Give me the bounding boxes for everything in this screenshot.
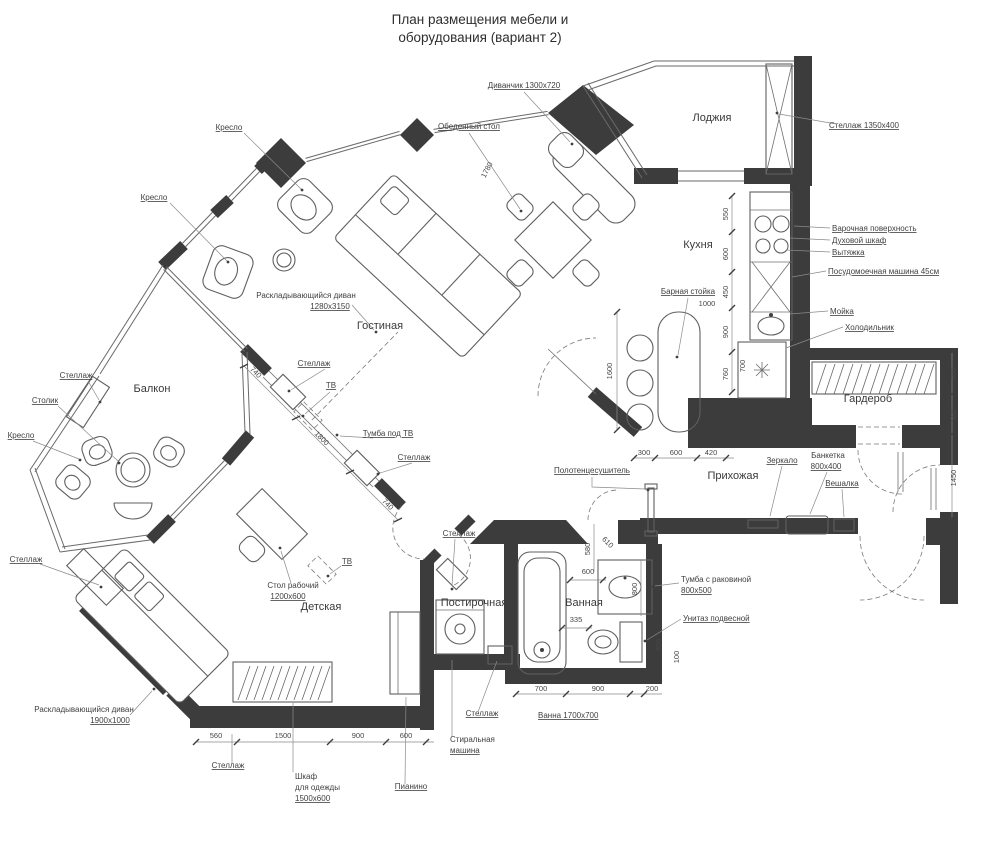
dim: 550 bbox=[721, 208, 730, 221]
room-kitchen: Кухня bbox=[683, 239, 712, 251]
furniture-dining bbox=[504, 129, 640, 289]
room-wardrobe: Гардероб bbox=[844, 393, 892, 405]
callout-kids-sofa: Раскладывающийся диван bbox=[34, 705, 134, 714]
dim: 700 bbox=[535, 684, 548, 693]
entrance-door-arc bbox=[860, 536, 924, 600]
door-arc bbox=[858, 450, 902, 494]
dim: 335 bbox=[570, 615, 583, 624]
dim: 1500 bbox=[275, 731, 292, 740]
dim: 900 bbox=[352, 731, 365, 740]
dim: 900 bbox=[721, 326, 730, 339]
callout-hanger: Вешалка bbox=[825, 479, 859, 488]
vanity bbox=[598, 560, 652, 614]
callout-toilet: Унитаз подвесной bbox=[683, 614, 750, 623]
dim: 200 bbox=[646, 684, 659, 693]
dim: 600 bbox=[949, 368, 958, 381]
toilet-bowl bbox=[588, 630, 618, 654]
dim: 300 bbox=[638, 448, 651, 457]
dim: 580 bbox=[583, 543, 592, 556]
balcony-chair bbox=[150, 434, 187, 471]
callout-bath: Ванна 1700х700 bbox=[538, 711, 599, 720]
balcony-bench bbox=[114, 503, 152, 519]
dim: 600 bbox=[721, 248, 730, 261]
callout-bench: Банкетка bbox=[811, 451, 845, 460]
dim: 760 bbox=[721, 368, 730, 381]
callout-fridge: Холодильник bbox=[845, 323, 894, 332]
room-loggia: Лоджия bbox=[693, 112, 732, 124]
kids-tv-dashed bbox=[308, 556, 336, 584]
dim: 1600 bbox=[605, 363, 614, 380]
dim: 420 bbox=[705, 448, 718, 457]
dim: 700 bbox=[738, 360, 747, 373]
chair bbox=[504, 191, 535, 222]
dim: 450 bbox=[721, 286, 730, 299]
callout-closet-size: 1500х600 bbox=[295, 794, 331, 803]
dim: 610 bbox=[600, 535, 615, 550]
kitchen-sink bbox=[758, 317, 784, 335]
dim: 1450 bbox=[949, 470, 958, 487]
side-table bbox=[273, 249, 295, 271]
dim: 100 bbox=[672, 651, 681, 664]
callout-armchair: Кресло bbox=[216, 123, 243, 132]
furniture-kids bbox=[67, 489, 424, 705]
callout-closet-1: Шкаф bbox=[295, 772, 317, 781]
callout-living-sofa-size: 1280х3150 bbox=[310, 302, 350, 311]
door-arc bbox=[588, 490, 618, 520]
room-balcony: Балкон bbox=[134, 383, 171, 395]
callout-balcony-table: Столик bbox=[32, 396, 59, 405]
entrance-door-arc bbox=[860, 536, 924, 600]
callout-tv: ТВ bbox=[326, 381, 336, 390]
floor-plan-drawing: План размещения мебели и оборудования (в… bbox=[0, 0, 1000, 857]
dim: 1000 bbox=[699, 299, 716, 308]
furniture-loggia bbox=[766, 64, 792, 174]
callout-tv-stand: Тумба под ТВ bbox=[363, 429, 414, 438]
callout-living-sofa: Раскладывающийся диван bbox=[256, 291, 356, 300]
callout-shelf: Стеллаж bbox=[466, 709, 499, 718]
callout-small-sofa: Диванчик 1300х720 bbox=[488, 81, 561, 90]
dim: 800 bbox=[630, 583, 639, 596]
furniture-balcony bbox=[53, 376, 188, 519]
tv-dashed bbox=[294, 402, 322, 430]
callout-towel-rail: Полотенцесушитель bbox=[554, 466, 630, 475]
title-line-2: оборудования (вариант 2) bbox=[398, 30, 561, 45]
kitchen-counter bbox=[750, 192, 792, 340]
dim: 1780 bbox=[479, 160, 495, 179]
callout-mirror: Зеркало bbox=[766, 456, 798, 465]
callout-desk: Стол рабочий bbox=[267, 581, 318, 590]
callout-dining-table: Обеденный стол bbox=[438, 122, 500, 131]
balcony-armchair bbox=[53, 462, 94, 503]
room-living: Гостиная bbox=[357, 320, 403, 332]
shelf-unit bbox=[270, 374, 305, 409]
callout-kids-tv: ТВ bbox=[342, 557, 352, 566]
callout-sink: Мойка bbox=[830, 307, 854, 316]
callout-vanity: Тумба с раковиной bbox=[681, 575, 751, 584]
snowflake-icon bbox=[754, 362, 770, 378]
hob-burner bbox=[755, 216, 771, 232]
dim: 600 bbox=[582, 567, 595, 576]
callout-vanity-size: 800х500 bbox=[681, 586, 712, 595]
callout-shelf: Стеллаж bbox=[398, 453, 431, 462]
callout-hood: Вытяжка bbox=[832, 248, 865, 257]
callout-oven: Духовой шкаф bbox=[832, 236, 887, 245]
bar-stool bbox=[627, 335, 653, 361]
dim: 600 bbox=[400, 731, 413, 740]
callout-balcony-chair: Кресло bbox=[8, 431, 35, 440]
piano bbox=[390, 612, 420, 694]
callout-washer-1: Стиральная bbox=[450, 735, 495, 744]
room-hallway: Прихожая bbox=[708, 470, 759, 482]
callout-loggia-shelf: Стеллаж 1350х400 bbox=[829, 121, 900, 130]
floor-plan-canvas: План размещения мебели и оборудования (в… bbox=[0, 0, 1000, 857]
callout-shelf: Стеллаж bbox=[298, 359, 331, 368]
door-arc bbox=[393, 506, 424, 559]
bar-stool bbox=[627, 370, 653, 396]
drawing-title: План размещения мебели и оборудования (в… bbox=[392, 12, 569, 45]
dim: 560 bbox=[210, 731, 223, 740]
chair bbox=[570, 257, 601, 288]
balcony-chair bbox=[79, 434, 114, 468]
dim: 600 bbox=[670, 448, 683, 457]
shelf-unit bbox=[344, 450, 379, 485]
toilet-cistern bbox=[620, 622, 642, 662]
door-arc bbox=[893, 465, 940, 512]
callout-shelf: Стеллаж bbox=[212, 761, 245, 770]
callout-kids-shelf: Стеллаж bbox=[10, 555, 43, 564]
dim: 580 bbox=[949, 409, 958, 422]
dishwasher-cross bbox=[752, 262, 790, 312]
callout-laundry-shelf: Стеллаж bbox=[443, 529, 476, 538]
callout-piano: Пианино bbox=[395, 782, 428, 791]
room-bathroom: Ванная bbox=[565, 597, 603, 609]
title-line-1: План размещения мебели и bbox=[392, 12, 569, 27]
callout-bench-size: 800х400 bbox=[811, 462, 842, 471]
bathtub bbox=[518, 552, 566, 674]
armchair bbox=[200, 243, 255, 301]
dim: 900 bbox=[592, 684, 605, 693]
room-laundry: Постирочная bbox=[441, 597, 508, 609]
kids-closet-hatch bbox=[233, 662, 332, 702]
furniture-bathroom bbox=[518, 484, 657, 674]
room-kids: Детская bbox=[301, 601, 342, 613]
dim: 800 bbox=[654, 639, 663, 652]
callout-desk-size: 1200х600 bbox=[270, 592, 306, 601]
callout-closet-2: для одежды bbox=[295, 783, 340, 792]
walls bbox=[84, 56, 958, 730]
callout-hob: Варочная поверхность bbox=[832, 224, 917, 233]
callout-washer-2: машина bbox=[450, 746, 480, 755]
callout-bar: Барная стойка bbox=[661, 287, 716, 296]
dim: 1800 bbox=[313, 429, 331, 447]
callout-balcony-shelf: Стеллаж bbox=[60, 371, 93, 380]
callout-armchair: Кресло bbox=[141, 193, 168, 202]
callout-kids-sofa-size: 1900х1000 bbox=[90, 716, 130, 725]
callout-dishwasher: Посудомоечная машина 45см bbox=[828, 267, 939, 276]
